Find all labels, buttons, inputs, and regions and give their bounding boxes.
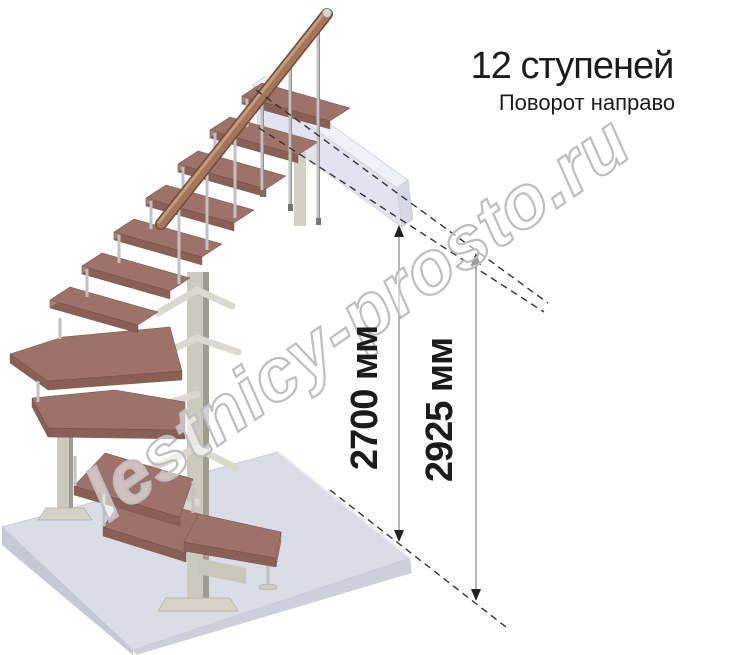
page-subtitle: Поворот направо [499,90,675,115]
dimension-2700-arrow-bottom [394,530,404,542]
dimension-2925 [471,253,481,601]
column-base-plate [158,598,238,611]
left-post-base-plate [38,508,92,520]
staircase-illustration: lestnicy-prosto.ru 2700 мм 2925 мм 12 ст… [0,0,744,655]
upper-support-post [294,152,306,226]
dimension-2700-label: 2700 мм [344,326,386,470]
title-block: 12 ступеней Поворот направо [471,45,676,115]
dimension-2925-arrow-bottom [471,589,481,601]
staircase-product-diagram: lestnicy-prosto.ru 2700 мм 2925 мм 12 ст… [0,0,744,655]
first-step-post-base [259,584,277,590]
page-title: 12 ступеней [471,45,674,87]
stair-step [82,253,190,299]
stair-step [10,327,182,390]
handrail-end-cap [323,9,332,18]
stair-step [50,287,158,333]
dimension-2925-label: 2925 мм [419,338,461,482]
